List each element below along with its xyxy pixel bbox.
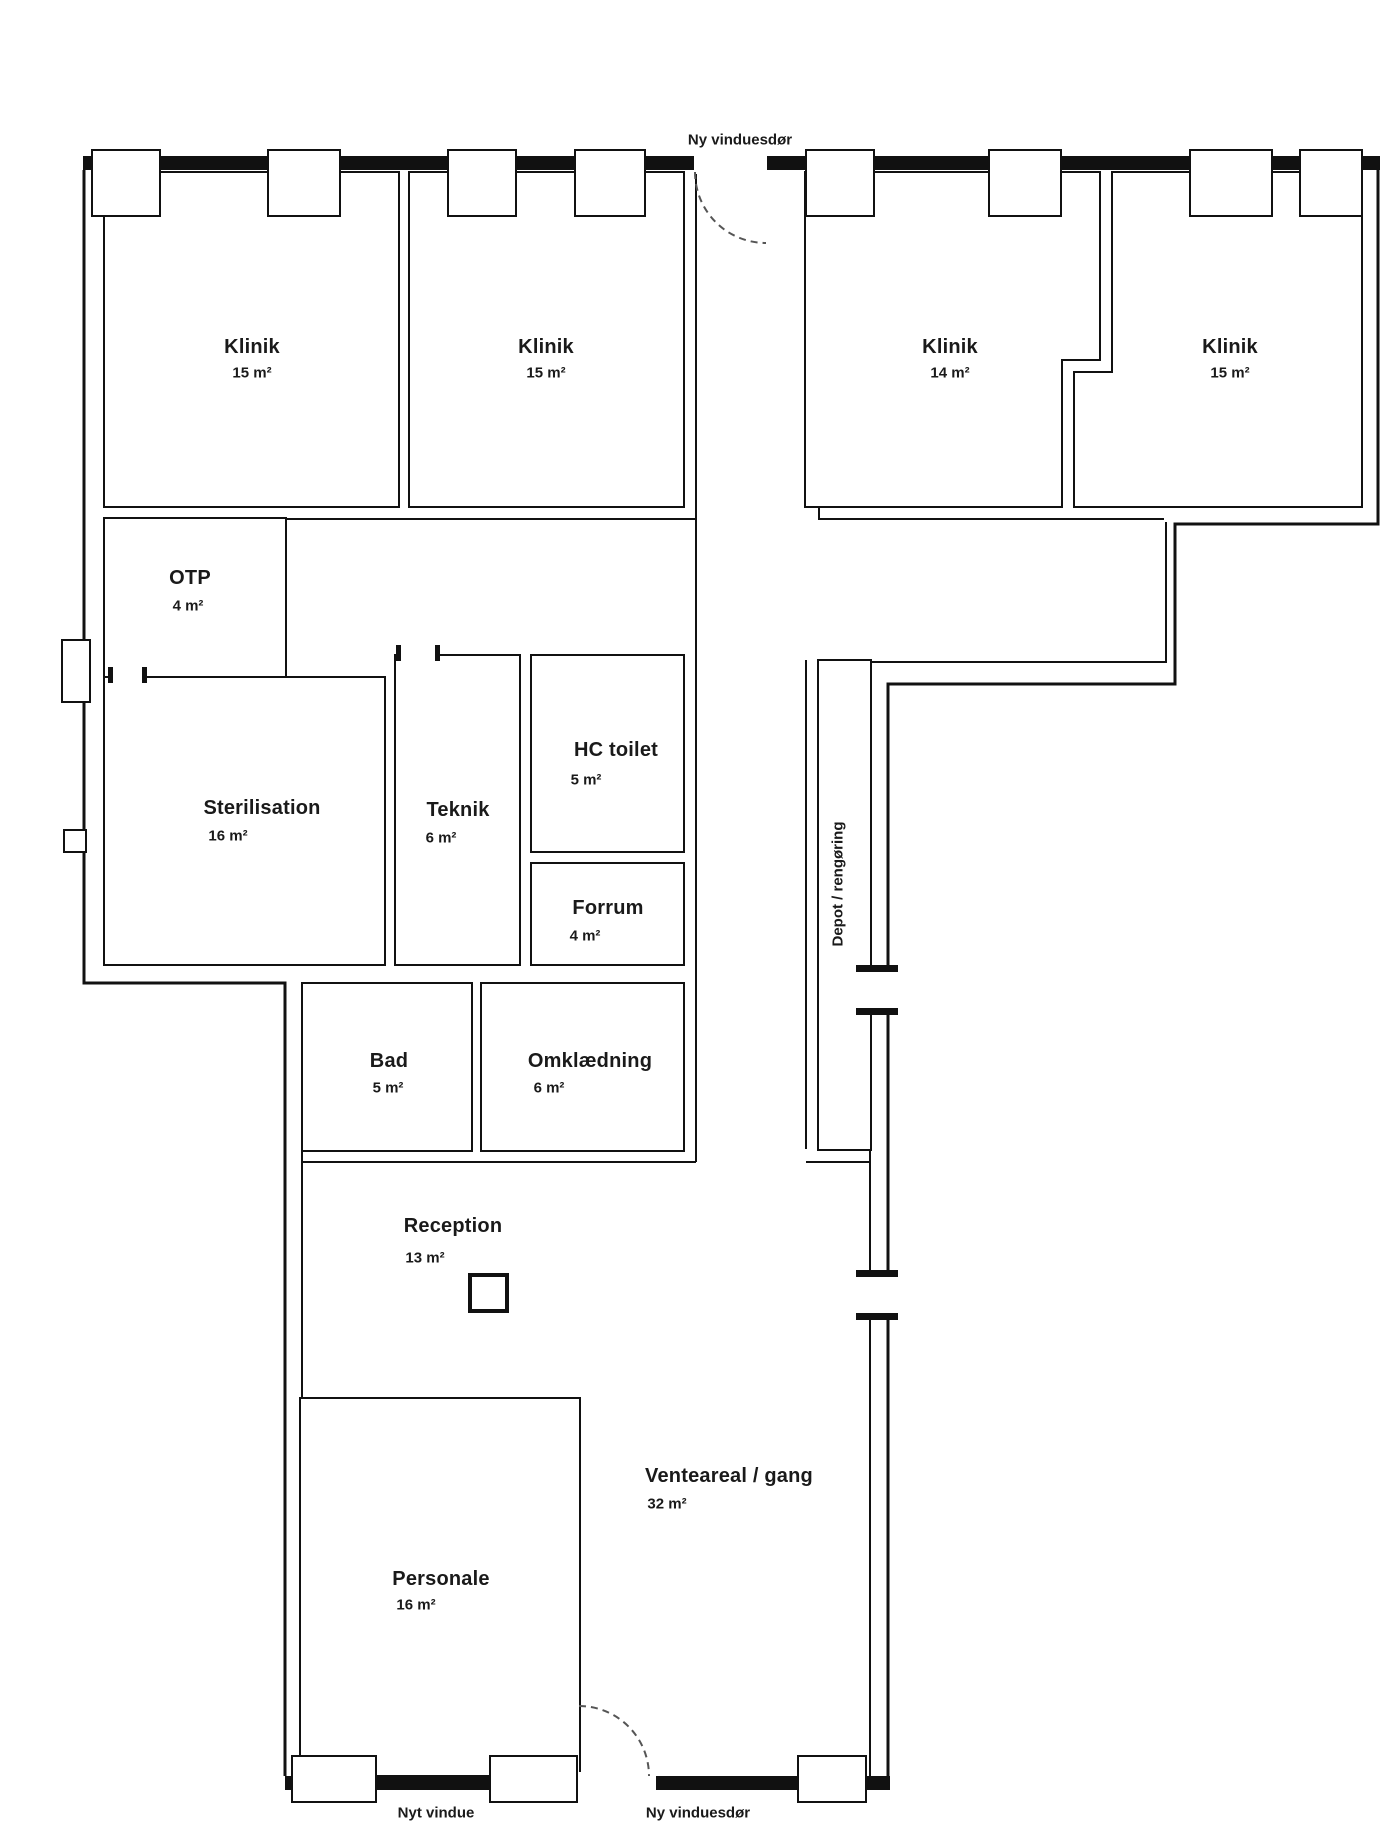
sterilisation-label: Sterilisation: [203, 798, 320, 818]
opening-jamb: [856, 1270, 898, 1277]
teknik-area: 6 m²: [426, 831, 457, 846]
venteareal-label: Venteareal / gang: [645, 1466, 813, 1486]
personale-label: Personale: [392, 1569, 489, 1589]
otp-area: 4 m²: [173, 599, 204, 614]
door-jamb: [142, 667, 147, 683]
venteareal-area: 32 m²: [647, 1497, 686, 1512]
window: [989, 150, 1061, 216]
sterilisation-area: 16 m²: [208, 829, 247, 844]
sterilisation-outline: [104, 677, 385, 965]
wall-recess: [64, 830, 86, 852]
reception-area: 13 m²: [405, 1251, 444, 1266]
window: [268, 150, 340, 216]
opening-jamb: [856, 1313, 898, 1320]
depot-label: Depot / rengøring: [831, 822, 846, 947]
bad-area: 5 m²: [373, 1081, 404, 1096]
door-jamb: [396, 645, 401, 661]
door-jamb: [435, 645, 440, 661]
klinik-1-area: 15 m²: [232, 366, 271, 381]
klinik-2-area: 15 m²: [526, 366, 565, 381]
top-door: [694, 150, 767, 243]
top-door-annotation: Ny vinduesdør: [688, 133, 792, 148]
floor-plan: Klinik 15 m² Klinik 15 m² Klinik 14 m² K…: [0, 0, 1400, 1848]
floor-plan-drawing: [0, 0, 1400, 1848]
omklaedning-label: Omklædning: [528, 1051, 652, 1071]
bad-label: Bad: [370, 1051, 408, 1071]
klinik-4-area: 15 m²: [1210, 366, 1249, 381]
door-swing-arc: [695, 172, 766, 243]
window: [92, 150, 160, 216]
window: [1300, 150, 1362, 216]
forrum-area: 4 m²: [570, 929, 601, 944]
window: [490, 1756, 577, 1802]
teknik-label: Teknik: [426, 800, 489, 820]
window: [292, 1756, 376, 1802]
window: [1190, 150, 1272, 216]
window: [798, 1756, 866, 1802]
opening-jamb: [856, 965, 898, 972]
window: [806, 150, 874, 216]
rooms: [104, 172, 1362, 1776]
bottom-door: [578, 1706, 656, 1792]
forrum-label: Forrum: [572, 898, 643, 918]
reception-column: [470, 1275, 507, 1311]
otp-label: OTP: [169, 568, 211, 588]
door-jamb: [108, 667, 113, 683]
klinik-4-label: Klinik: [1202, 337, 1258, 357]
klinik-1-label: Klinik: [224, 337, 280, 357]
hc-toilet-area: 5 m²: [571, 773, 602, 788]
klinik-2-label: Klinik: [518, 337, 574, 357]
window: [448, 150, 516, 216]
window: [575, 150, 645, 216]
bottom-window-annotation: Nyt vindue: [398, 1806, 475, 1821]
reception-label: Reception: [404, 1216, 502, 1236]
wall-recess: [62, 640, 90, 702]
bottom-door-annotation: Ny vinduesdør: [646, 1806, 750, 1821]
hc-toilet-label: HC toilet: [574, 740, 658, 760]
opening-jamb: [856, 1008, 898, 1015]
door-swing-arc: [579, 1706, 649, 1776]
klinik-3-label: Klinik: [922, 337, 978, 357]
personale-area: 16 m²: [396, 1598, 435, 1613]
klinik-3-area: 14 m²: [930, 366, 969, 381]
omklaedning-area: 6 m²: [534, 1081, 565, 1096]
